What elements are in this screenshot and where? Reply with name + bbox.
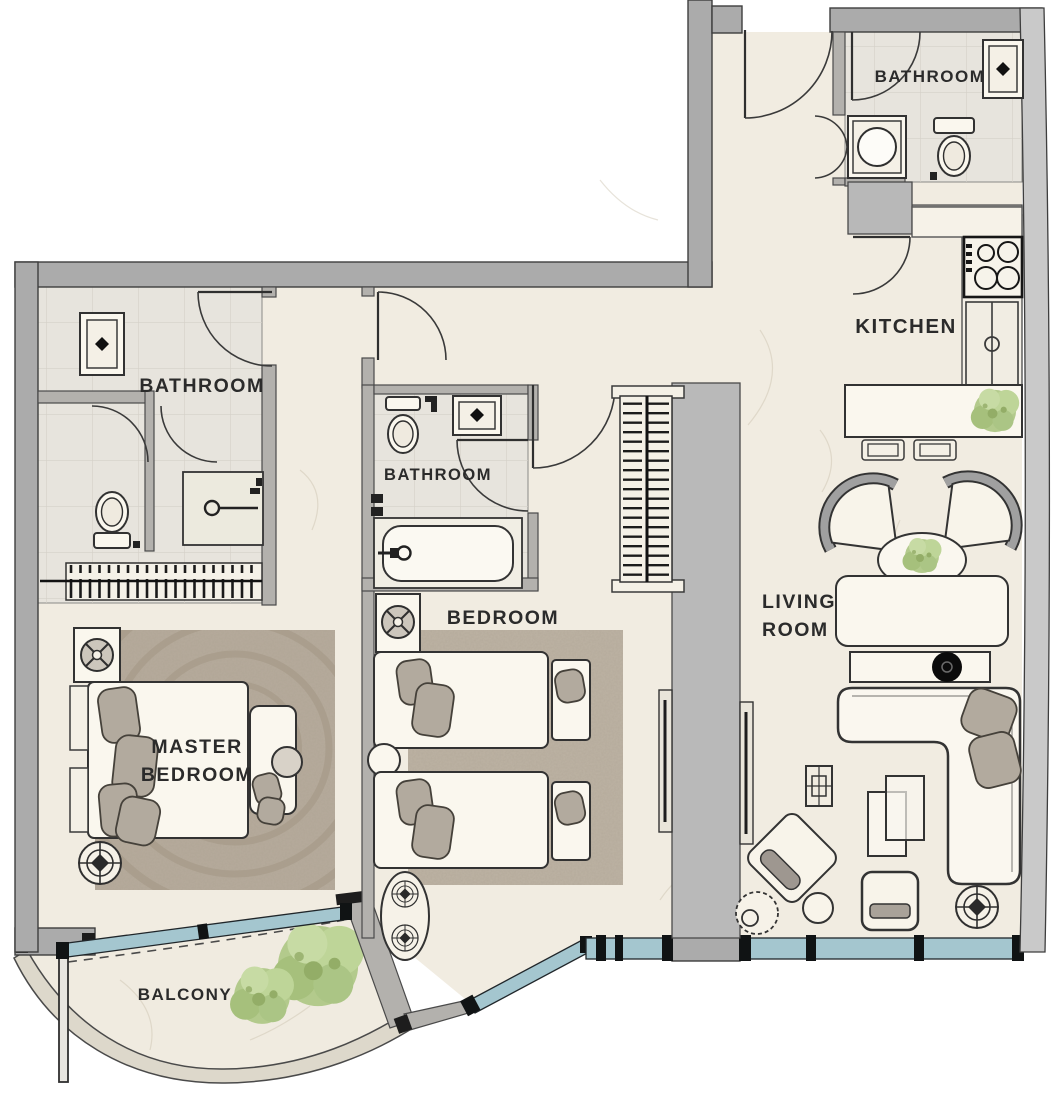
lamp-icon <box>382 606 414 638</box>
balcony-label: BALCONY <box>138 985 233 1004</box>
ottoman <box>862 872 918 930</box>
tv-panel-left <box>659 690 672 832</box>
oval-decor <box>381 872 429 960</box>
living-room-label-line2: ROOM <box>762 619 829 641</box>
nightstand <box>74 628 120 682</box>
tv-panel-right <box>740 702 753 844</box>
round-side-table <box>736 892 778 934</box>
balcony-door-leaf <box>59 950 68 1082</box>
bathroom-middle-label: BATHROOM <box>384 466 492 484</box>
master-bedroom-label-line1: MASTER <box>151 736 242 758</box>
washing-machine <box>848 116 906 178</box>
nightstand <box>376 594 420 652</box>
living-room-label-line1: LIVING <box>762 591 836 613</box>
vanity-desk <box>250 706 302 826</box>
ceiling-fan-icon <box>79 842 121 884</box>
tv-console <box>850 652 990 682</box>
stove <box>964 237 1022 297</box>
hanger-wardrobe <box>40 563 262 600</box>
living-room-window <box>586 938 1022 959</box>
pillow <box>411 804 456 861</box>
pillow <box>411 682 456 739</box>
master-bedroom-label-line2: BEDROOM <box>141 764 253 786</box>
twin-bed-2 <box>374 772 590 868</box>
entry-counter <box>912 207 1022 237</box>
floor-plan-page: MASTER BEDROOM <box>0 0 1055 1100</box>
kitchen-label: KITCHEN <box>855 315 957 338</box>
ceiling-fan-icon <box>956 886 998 928</box>
twin-bed-1 <box>374 652 590 748</box>
kitchen-sink <box>966 302 1018 388</box>
sink <box>453 396 501 435</box>
apartment-floor-plan: MASTER BEDROOM <box>0 0 1055 1100</box>
bathroom-left-label: BATHROOM <box>139 375 264 397</box>
stool <box>803 893 833 923</box>
bathroom-top-label: BATHROOM <box>875 67 986 86</box>
bedroom-label: BEDROOM <box>447 607 559 629</box>
lamp-icon <box>81 639 113 671</box>
shower <box>183 472 263 545</box>
sink <box>983 40 1023 98</box>
dining-table <box>836 576 1008 646</box>
sink <box>80 313 124 375</box>
